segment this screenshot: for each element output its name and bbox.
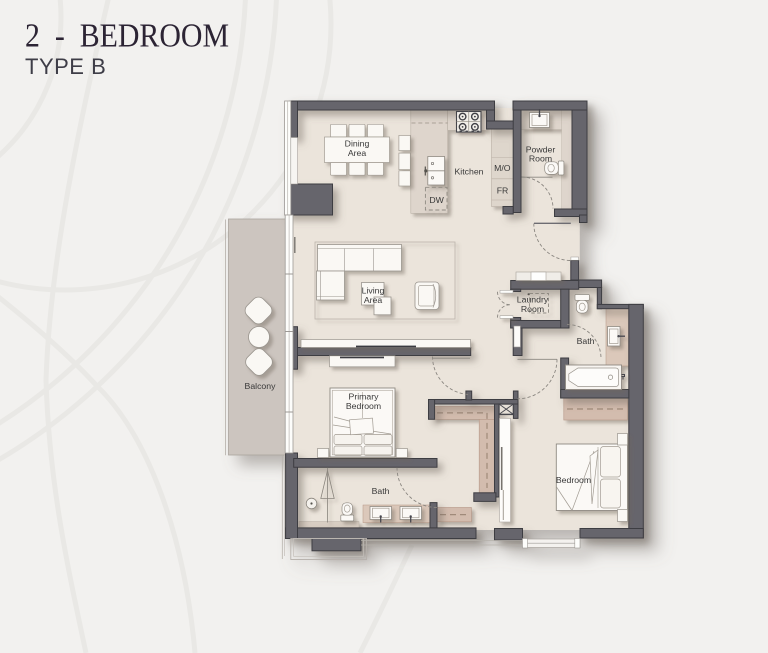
svg-text:FR: FR (497, 186, 509, 196)
svg-text:Dining: Dining (345, 139, 370, 149)
svg-text:TYPE B: TYPE B (25, 54, 106, 79)
svg-text:M/O: M/O (494, 163, 511, 173)
svg-text:Bath: Bath (372, 486, 390, 496)
svg-text:Bedroom: Bedroom (556, 475, 591, 485)
svg-text:Kitchen: Kitchen (455, 167, 484, 177)
svg-text:Bedroom: Bedroom (346, 401, 381, 411)
svg-text:DW: DW (429, 195, 444, 205)
svg-text:2 - BEDROOM: 2 - BEDROOM (25, 18, 229, 55)
svg-text:Room: Room (529, 154, 552, 164)
svg-text:Room: Room (521, 304, 544, 314)
svg-text:Primary: Primary (349, 392, 380, 402)
svg-text:Laundry: Laundry (517, 295, 549, 305)
svg-text:Bath: Bath (577, 336, 595, 346)
svg-text:Area: Area (348, 148, 367, 158)
svg-text:Area: Area (364, 295, 383, 305)
svg-text:Balcony: Balcony (245, 381, 277, 391)
svg-text:Living: Living (362, 286, 385, 296)
